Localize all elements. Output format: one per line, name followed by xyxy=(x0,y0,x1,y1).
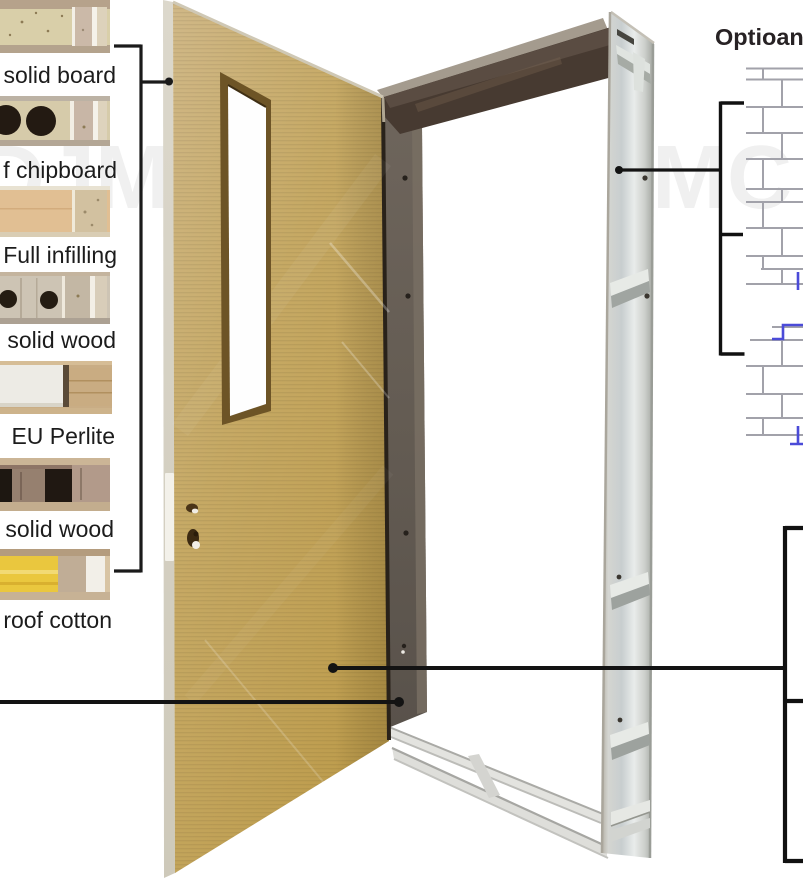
svg-text:f chipboard: f chipboard xyxy=(3,157,117,183)
svg-text:EU Perlite: EU Perlite xyxy=(11,423,115,449)
svg-text:roof cotton: roof cotton xyxy=(3,607,112,633)
svg-text:solid board: solid board xyxy=(3,62,116,88)
svg-text:solid wood: solid wood xyxy=(5,516,114,542)
svg-text:Full infilling: Full infilling xyxy=(3,242,117,268)
svg-text:Optioan: Optioan xyxy=(715,24,803,50)
svg-text:solid wood: solid wood xyxy=(7,327,116,353)
